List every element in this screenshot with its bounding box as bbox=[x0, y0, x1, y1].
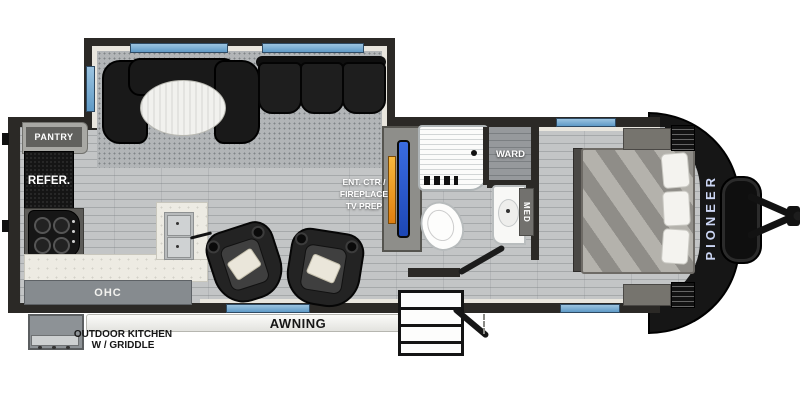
refrigerator: REFER. bbox=[24, 151, 74, 211]
rear-bracket-icon bbox=[2, 133, 9, 145]
sink-basin bbox=[167, 215, 191, 236]
sink-drain-icon bbox=[176, 222, 179, 225]
hitch-frame bbox=[748, 190, 800, 242]
tv bbox=[397, 140, 410, 238]
pillow bbox=[662, 190, 691, 226]
bath-faucet-icon bbox=[506, 209, 510, 213]
pantry-label-band: PANTRY bbox=[26, 127, 82, 147]
window bbox=[130, 43, 228, 53]
wardrobe-label: WARD bbox=[496, 149, 525, 160]
door-swing-line bbox=[483, 314, 485, 334]
stove-knob-icon bbox=[72, 230, 75, 233]
pillow bbox=[661, 152, 691, 189]
medicine-cabinet-label: MED bbox=[522, 202, 531, 223]
toilet-bowl bbox=[423, 206, 459, 245]
overhead-cabinet-label: OHC bbox=[94, 287, 121, 299]
sofa bbox=[256, 56, 386, 114]
burner-icon bbox=[53, 217, 70, 234]
griddle-knob-icon bbox=[52, 346, 56, 349]
bath-wall-stub bbox=[408, 268, 460, 277]
brand-logo-text: PIONEER bbox=[703, 174, 718, 261]
entry-steps bbox=[398, 290, 464, 356]
nightstand bbox=[623, 128, 671, 150]
window bbox=[226, 304, 310, 313]
cooktop bbox=[28, 210, 80, 258]
outdoor-kitchen-label-line2: W / GRIDDLE bbox=[92, 340, 155, 351]
griddle-knob-icon bbox=[38, 346, 42, 349]
window bbox=[560, 304, 620, 313]
entertainment-label-line1: ENT. CTR / bbox=[343, 177, 386, 187]
burner-icon bbox=[34, 237, 51, 254]
corner-cabinet bbox=[671, 282, 695, 308]
window bbox=[556, 118, 616, 127]
pillow bbox=[661, 228, 690, 265]
nightstand bbox=[623, 284, 671, 306]
bedroom-wall bbox=[531, 127, 539, 188]
outdoor-kitchen-label-line1: OUTDOOR KITCHEN bbox=[74, 329, 172, 340]
entertainment-label-line2: FIREPLACE bbox=[340, 189, 388, 199]
shower-mat-icon bbox=[424, 176, 458, 185]
sofa-cushion bbox=[342, 62, 386, 114]
brand-logo: PIONEER bbox=[700, 158, 720, 276]
pantry-label: PANTRY bbox=[35, 132, 74, 142]
corner-cabinet bbox=[671, 125, 695, 151]
recliner bbox=[283, 225, 363, 307]
shower-door-handle-icon bbox=[471, 150, 477, 156]
sofa-cushion bbox=[300, 62, 344, 114]
rear-bracket-icon bbox=[2, 220, 9, 232]
awning-label: AWNING bbox=[262, 316, 334, 330]
window bbox=[262, 43, 364, 53]
floorplan-canvas: AWNING OUTDOOR KITCHEN W / GRIDDLE bbox=[0, 0, 800, 400]
refrigerator-label: REFER. bbox=[28, 175, 70, 187]
bath-partition-wall bbox=[483, 127, 489, 185]
rear-wall bbox=[8, 117, 20, 313]
stove-knob-icon bbox=[72, 220, 75, 223]
outdoor-kitchen-label: OUTDOOR KITCHEN W / GRIDDLE bbox=[58, 329, 188, 351]
burner-icon bbox=[53, 237, 70, 254]
dinette-table bbox=[140, 80, 226, 136]
window bbox=[86, 66, 95, 112]
entertainment-label-line3: TV PREP bbox=[346, 201, 382, 211]
entertainment-label: ENT. CTR / FIREPLACE TV PREP bbox=[334, 176, 394, 212]
stove-knob-icon bbox=[72, 240, 75, 243]
sofa-cushion bbox=[258, 62, 302, 114]
sink-drain-icon bbox=[176, 245, 179, 248]
bath-sink-basin bbox=[498, 199, 519, 227]
sink-basin bbox=[167, 237, 191, 258]
medicine-cabinet: MED bbox=[519, 188, 534, 236]
burner-icon bbox=[34, 217, 51, 234]
overhead-cabinet: OHC bbox=[24, 280, 192, 305]
wardrobe: WARD bbox=[489, 127, 532, 182]
